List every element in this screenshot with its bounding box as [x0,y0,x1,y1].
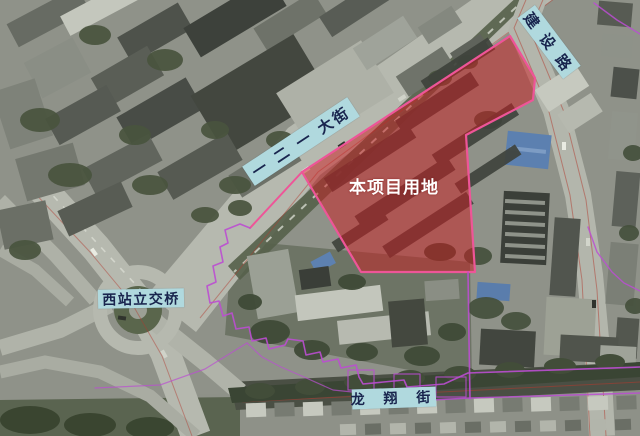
satellite-map-figure: 一 二 一 大街 建 设 路 西站立交桥 龙 翔 街 本项目用地 [0,0,640,436]
label-west-station-overpass: 西站立交桥 [98,288,184,308]
project-site-label: 本项目用地 [349,173,439,198]
satellite-basemap [0,0,640,436]
street-label-longxiang-street: 龙 翔 街 [352,387,437,410]
